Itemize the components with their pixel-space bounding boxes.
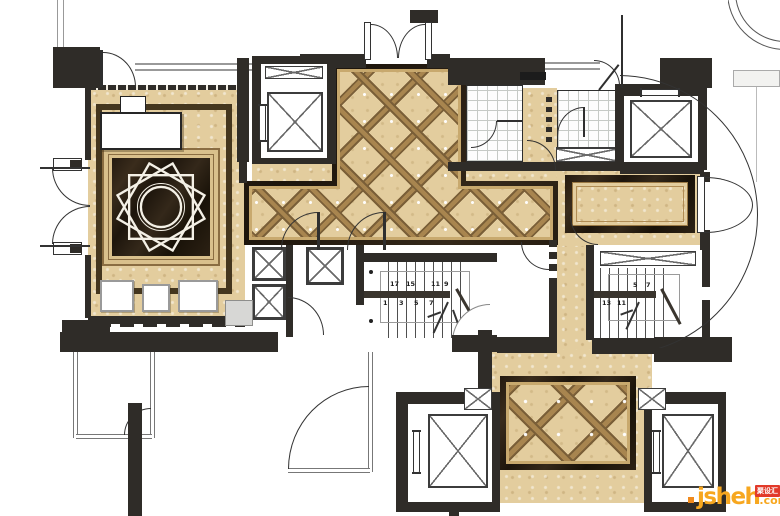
wall-dash-floating	[410, 10, 438, 23]
stair-number: 5	[414, 299, 419, 307]
wall-dash-dark	[520, 72, 546, 80]
entry-door-arc-topleft	[103, 52, 136, 87]
stair-right-left-wall	[586, 245, 594, 340]
left-double-door-arc-top	[52, 168, 90, 206]
elevator-d-door-indicator	[653, 430, 660, 474]
wall-segment	[239, 162, 247, 183]
door-leaf	[383, 212, 386, 250]
stair-center-rail	[364, 291, 450, 298]
left-double-door-arc-bottom	[52, 206, 90, 244]
counterweight-xbox	[265, 66, 323, 79]
fixture-block	[546, 117, 552, 122]
handrail-post-dot	[369, 270, 373, 274]
double-door-arc-right	[398, 24, 425, 58]
double-door-leaf	[425, 22, 432, 60]
seat-left	[100, 280, 134, 312]
double-door-leaf	[364, 22, 371, 60]
seat-right	[178, 280, 218, 312]
wall-left-lower	[85, 255, 91, 318]
watermark: jsheh.com 聚设汇	[697, 484, 780, 516]
shaft-duct-2	[252, 284, 286, 320]
wall-line-above	[63, 0, 64, 47]
reception-desk	[100, 112, 182, 150]
elevator-d-car-icon	[662, 414, 714, 488]
watermark-badge: 聚设汇	[755, 485, 780, 497]
door-frame-line	[40, 245, 90, 247]
window-line	[545, 68, 600, 70]
exterior-ledge	[225, 300, 253, 326]
elevator-c-car-icon	[428, 414, 488, 488]
stair-center-left-wall	[356, 245, 364, 305]
door-leaf	[497, 120, 522, 122]
lotus-star-icon	[112, 158, 210, 256]
seat-middle	[142, 284, 170, 312]
stair-center-top-wall	[364, 253, 497, 262]
exterior-wall-line	[756, 87, 757, 182]
duct-xbox-small	[464, 388, 492, 410]
watermark-dot	[688, 497, 694, 503]
exterior-balcony-band	[733, 70, 780, 87]
room-door-arc-large	[288, 386, 369, 469]
stair-number: 1	[383, 299, 388, 307]
jamb-tick	[549, 264, 557, 271]
fixture-block	[546, 127, 552, 132]
elevator-c-door-indicator	[413, 430, 420, 474]
wall-block	[62, 320, 110, 332]
floor-plan-canvas: 17 15 11 9 1 3 5 7 5 7 13 11	[0, 0, 780, 516]
wall-bottom-left-vertical	[128, 403, 142, 516]
door-arc-topright	[594, 60, 620, 86]
wall-room-right	[237, 58, 249, 162]
fixture-block	[546, 137, 552, 142]
stair-number: 17	[390, 280, 399, 288]
passage-door-arc	[521, 242, 549, 270]
corner-arc-clip	[728, 0, 780, 52]
star-panel-marble	[112, 158, 210, 256]
window-line	[545, 62, 600, 64]
shaft-duct-3	[306, 247, 344, 285]
wall-line-above	[57, 0, 58, 47]
door-leaf	[317, 212, 320, 250]
stair-number: 3	[399, 299, 404, 307]
wall-corner-block-topleft	[53, 47, 100, 88]
shaft-duct-1	[252, 247, 286, 281]
stair-number: 7	[429, 299, 434, 307]
wall-bottom-long	[60, 332, 278, 352]
jamb-tick	[549, 252, 557, 259]
wall-left-upper	[85, 88, 91, 160]
lobby-panel-diamond	[509, 385, 627, 461]
elevator-a-door-indicator	[259, 104, 266, 142]
thin-wall	[73, 352, 78, 438]
duct-xbox-small	[638, 388, 666, 410]
wall-segment	[549, 278, 557, 340]
wall-segment	[497, 337, 557, 353]
handrail-post-dot	[369, 319, 373, 323]
elevator-a-car-icon	[267, 92, 323, 152]
floor-sliver-left-of-stem	[252, 164, 332, 181]
double-door-arc-left	[371, 24, 398, 58]
jamb-tick	[549, 240, 557, 247]
stair-number: 11	[431, 280, 440, 288]
window-sill-mullions	[88, 324, 245, 327]
fixture-block	[546, 107, 552, 112]
door-leaf	[583, 107, 585, 137]
fixture-block	[546, 97, 552, 102]
grille-xbox	[556, 147, 618, 163]
stair-number: 15	[406, 280, 415, 288]
stair-number: 13	[602, 299, 611, 307]
curved-wall-arc	[620, 75, 758, 348]
stair-number: 9	[444, 280, 449, 288]
curved-entrance-clip	[620, 58, 770, 348]
watermark-brand: jsheh	[697, 484, 759, 510]
entrance-door-leaf	[621, 15, 623, 88]
